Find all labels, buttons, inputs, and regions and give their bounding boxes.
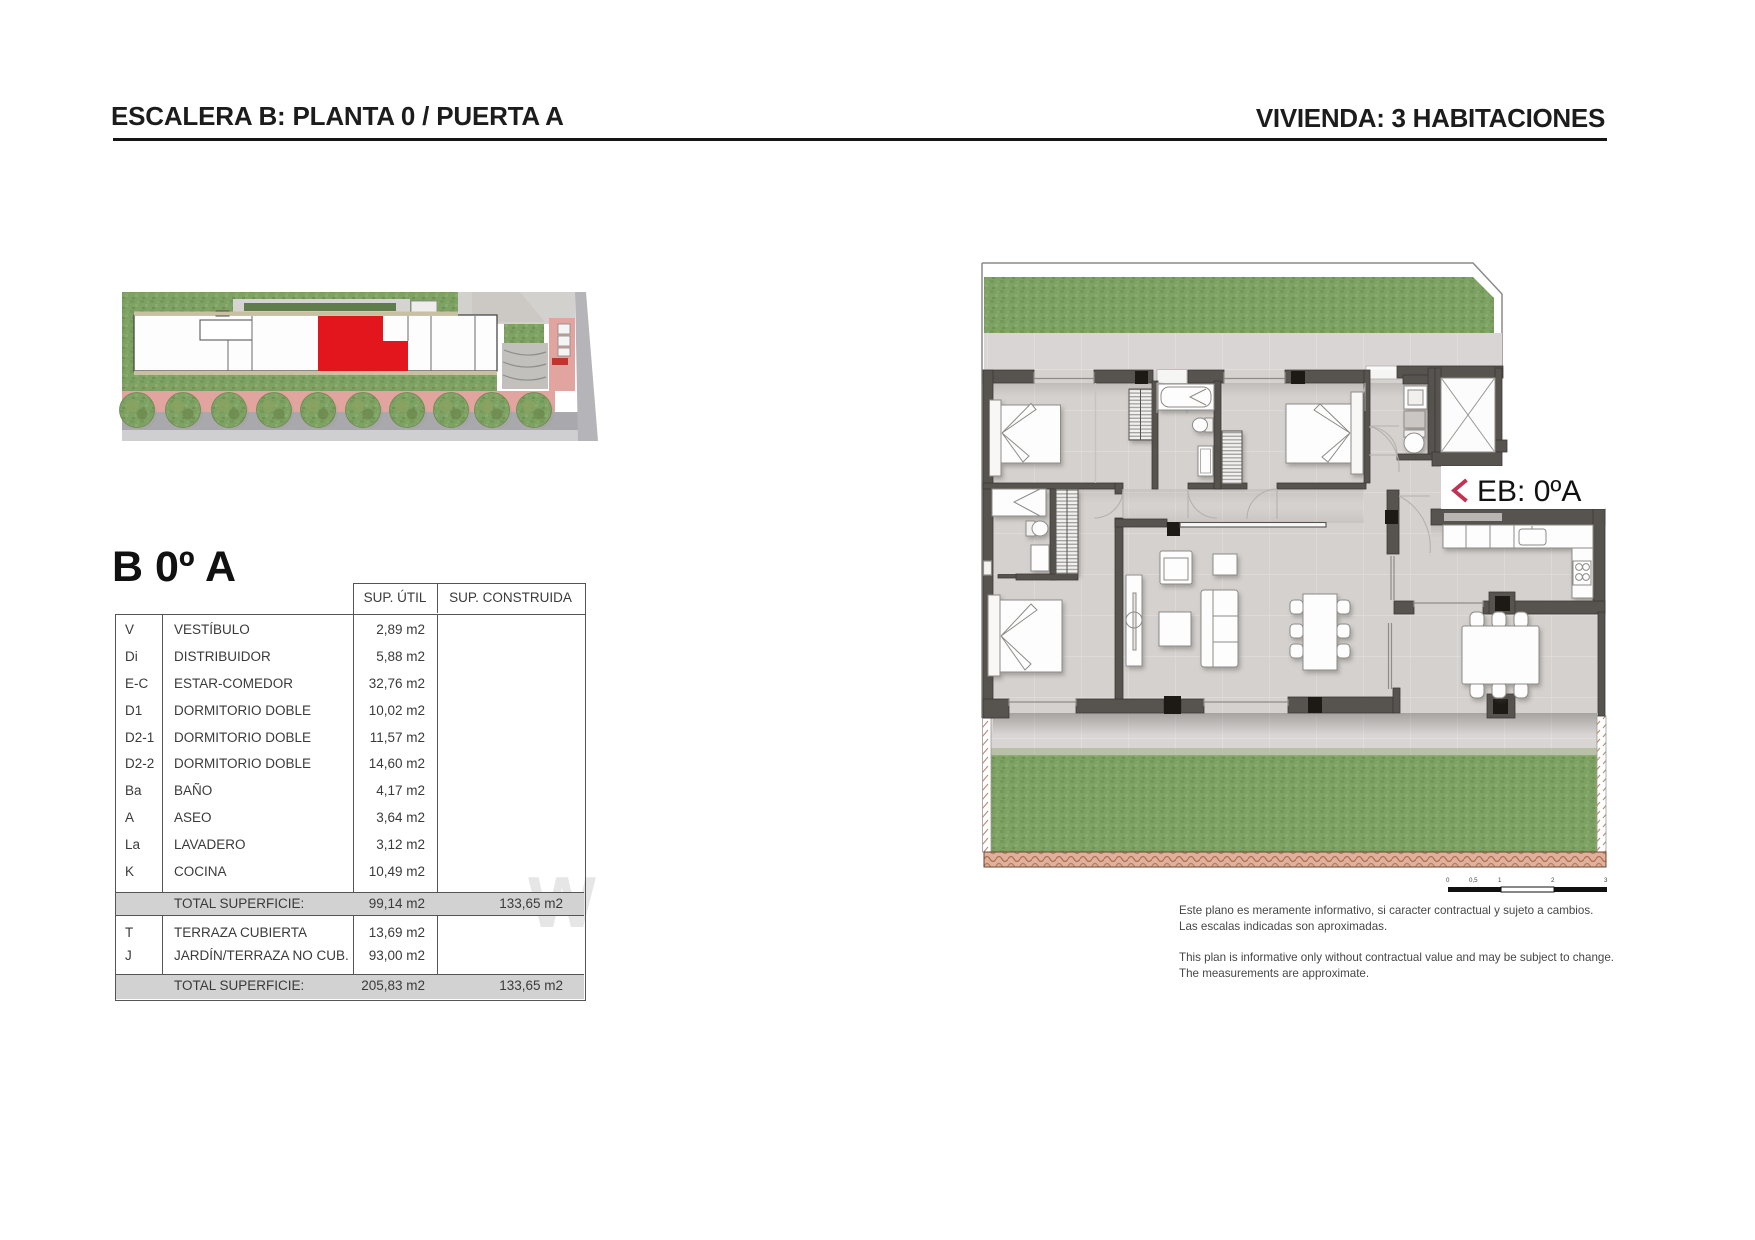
- svg-text:EB: 0ºA: EB: 0ºA: [1477, 475, 1581, 508]
- svg-text:0,5: 0,5: [1469, 877, 1478, 884]
- svg-text:0: 0: [1446, 877, 1450, 884]
- svg-text:3: 3: [1604, 877, 1608, 884]
- svg-text:1: 1: [1498, 877, 1502, 884]
- svg-text:2: 2: [1551, 877, 1555, 884]
